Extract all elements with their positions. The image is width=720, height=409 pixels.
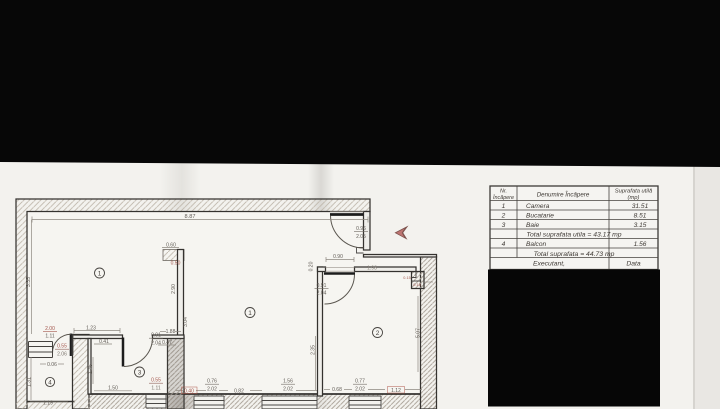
svg-text:8.87: 8.87: [185, 214, 196, 220]
svg-text:3.04: 3.04: [183, 317, 189, 327]
svg-text:Camera: Camera: [526, 203, 550, 210]
svg-text:2.02: 2.02: [207, 387, 217, 393]
svg-text:1.11: 1.11: [151, 386, 161, 392]
svg-text:Încăpere: Încăpere: [493, 194, 514, 201]
svg-text:1.56: 1.56: [634, 241, 647, 248]
svg-text:3: 3: [502, 222, 506, 229]
svg-text:2.00: 2.00: [45, 326, 55, 332]
svg-text:1.56: 1.56: [283, 379, 293, 385]
svg-text:2.90: 2.90: [171, 284, 177, 294]
svg-text:4: 4: [48, 379, 52, 386]
svg-text:0.77: 0.77: [355, 379, 365, 385]
svg-text:2.04: 2.04: [151, 341, 161, 347]
svg-text:0.55: 0.55: [57, 344, 67, 350]
svg-text:31.51: 31.51: [632, 203, 649, 210]
svg-text:(mp): (mp): [628, 195, 640, 201]
svg-text:2.02: 2.02: [355, 387, 365, 393]
svg-text:1.19: 1.19: [43, 401, 53, 407]
svg-text:0.40: 0.40: [184, 388, 194, 394]
svg-text:1.98: 1.98: [367, 266, 377, 272]
svg-text:1.45: 1.45: [88, 364, 94, 374]
svg-text:1.50: 1.50: [108, 386, 118, 392]
svg-text:0.50: 0.50: [171, 261, 181, 267]
svg-text:0.91: 0.91: [317, 283, 327, 289]
svg-text:1.11: 1.11: [45, 334, 55, 340]
svg-text:0.41: 0.41: [99, 339, 109, 345]
svg-text:1.88: 1.88: [166, 329, 176, 335]
svg-text:5.07: 5.07: [416, 328, 422, 338]
svg-text:Total suprafata = 44.73 mp: Total suprafata = 44.73 mp: [534, 251, 615, 258]
svg-text:1.12: 1.12: [391, 388, 401, 394]
svg-text:2.06: 2.06: [57, 352, 67, 358]
svg-text:4: 4: [502, 241, 506, 248]
svg-text:0.96: 0.96: [356, 226, 366, 232]
svg-text:3.15: 3.15: [634, 222, 647, 229]
svg-text:1.23: 1.23: [86, 326, 96, 332]
svg-text:0.82: 0.82: [234, 388, 244, 394]
svg-text:1: 1: [98, 270, 102, 277]
svg-text:0.55: 0.55: [151, 378, 161, 384]
svg-text:2.04: 2.04: [317, 291, 327, 297]
svg-text:Nr.: Nr.: [500, 189, 507, 195]
svg-text:8.51: 8.51: [634, 213, 647, 220]
svg-text:Total suprafata utila = 43.17: Total suprafata utila = 43.17 mp: [526, 232, 621, 239]
svg-text:0.76: 0.76: [207, 379, 217, 385]
svg-text:2: 2: [501, 213, 506, 220]
svg-text:Baie: Baie: [526, 222, 540, 229]
svg-text:1: 1: [248, 310, 252, 317]
svg-text:0.47: 0.47: [162, 340, 172, 346]
svg-text:Data: Data: [626, 261, 641, 268]
svg-text:3.35: 3.35: [26, 277, 32, 287]
svg-text:Denumire Încăpere: Denumire Încăpere: [537, 191, 590, 198]
svg-text:0.20: 0.20: [309, 261, 315, 271]
svg-text:Suprafata utilă: Suprafata utilă: [615, 189, 653, 195]
svg-text:Executant,: Executant,: [533, 261, 565, 268]
svg-text:0.15: 0.15: [413, 283, 420, 287]
svg-text:0.90: 0.90: [333, 254, 343, 260]
svg-text:0.68: 0.68: [332, 387, 342, 393]
svg-text:2.05: 2.05: [356, 234, 366, 240]
svg-text:0.60: 0.60: [166, 243, 176, 249]
svg-text:0.91: 0.91: [151, 333, 161, 339]
svg-text:2: 2: [376, 330, 380, 337]
svg-text:1.31: 1.31: [27, 377, 33, 387]
svg-text:1: 1: [502, 203, 506, 210]
svg-text:Bucatarie: Bucatarie: [526, 213, 554, 220]
svg-text:Balcon: Balcon: [526, 241, 546, 248]
svg-text:2.02: 2.02: [283, 387, 293, 393]
svg-text:2.35: 2.35: [311, 345, 317, 355]
svg-text:0.06: 0.06: [47, 362, 57, 368]
svg-text:3: 3: [138, 369, 142, 376]
svg-text:0.15: 0.15: [403, 276, 410, 280]
